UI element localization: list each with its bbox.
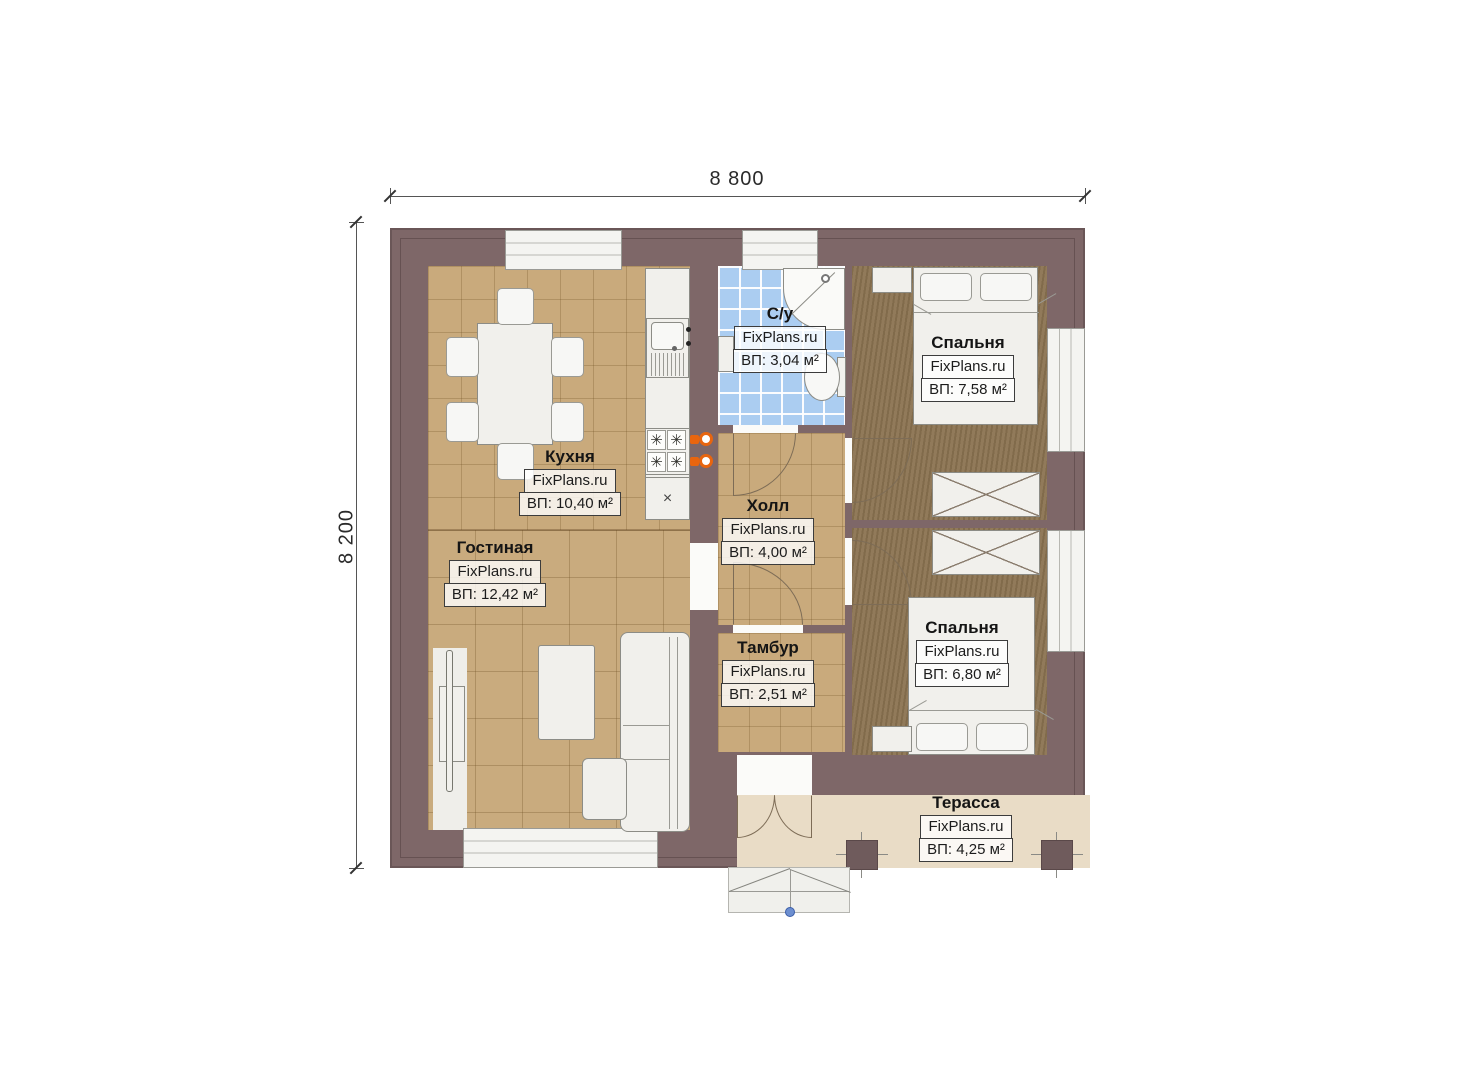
watermark-box: FixPlans.ru [920, 815, 1011, 839]
kitchen-living-divider [428, 529, 690, 531]
bedroom1-nightstand [872, 267, 912, 293]
porch-marker-dot [785, 907, 795, 917]
living-hall-passage [690, 543, 718, 610]
room-name: Гостиная [457, 538, 534, 558]
area-box: ВП: 4,00 м² [721, 541, 815, 565]
sofa-seat-line [623, 759, 669, 760]
bathroom-window [742, 230, 818, 270]
stove-knob-stick [690, 457, 699, 466]
sofa-main [620, 632, 690, 832]
pillow [920, 273, 972, 301]
watermark-box: FixPlans.ru [449, 560, 540, 584]
stove-burner: ✳ [667, 430, 686, 450]
kitchen-sink-bowl [651, 322, 684, 350]
area-box: ВП: 2,51 м² [721, 683, 815, 707]
dining-chair [497, 288, 534, 325]
porch-eave-line [729, 891, 849, 892]
coffee-table [538, 645, 595, 740]
watermark-box: FixPlans.ru [916, 640, 1007, 664]
dining-chair [551, 402, 584, 442]
blanket-line [909, 710, 1036, 711]
kitchen-sink-drainboard [651, 353, 684, 376]
burner-icon: ✳ [670, 433, 683, 448]
bathroom-door-opening [733, 425, 798, 433]
pillow [916, 723, 968, 751]
dimension-height-label: 8 200 [336, 507, 359, 567]
stove-burner: ✳ [667, 452, 686, 472]
sofa-seat-line [623, 725, 669, 726]
kitchen-window [505, 230, 622, 270]
bedroom2-label: Спальня FixPlans.ru ВП: 6,80 м² [906, 618, 1018, 687]
entrance-porch [728, 867, 850, 913]
tambour-door-opening [733, 625, 803, 633]
tambour-label: Тамбур FixPlans.ru ВП: 2,51 м² [712, 638, 824, 707]
dining-chair [446, 402, 479, 442]
kitchen-cabinet: × [645, 477, 690, 520]
counter-knob-dot [686, 341, 691, 346]
porch-ridge-line [790, 869, 791, 912]
hall-label: Холл FixPlans.ru ВП: 4,00 м² [715, 496, 821, 565]
bedroom1-label: Спальня FixPlans.ru ВП: 7,58 м² [912, 333, 1024, 402]
bedroom1-window [1047, 328, 1085, 452]
counter-knob-dot [686, 327, 691, 332]
dining-chair [551, 337, 584, 377]
watermark-box: FixPlans.ru [524, 469, 615, 493]
area-box: ВП: 3,04 м² [733, 349, 827, 373]
bedroom1-door-opening [845, 438, 852, 503]
blanket-fold [914, 304, 932, 315]
terrace-post [1041, 840, 1073, 870]
watermark-box: FixPlans.ru [722, 518, 813, 542]
kitchen-faucet-dot [672, 346, 677, 351]
sofa-chaise [582, 758, 627, 820]
porch-roof-edge [729, 868, 790, 892]
cabinet-x-icon: × [663, 490, 672, 508]
stove-knob-stick [690, 435, 699, 444]
room-name: Спальня [931, 333, 1004, 353]
room-name: Кухня [545, 447, 595, 467]
area-box: ВП: 12,42 м² [444, 583, 546, 607]
bedroom1-wardrobe [932, 472, 1040, 517]
burner-icon: ✳ [650, 433, 663, 448]
dining-chair [446, 337, 479, 377]
bedroom2-door-opening [845, 538, 852, 605]
kitchen-label: Кухня FixPlans.ru ВП: 10,40 м² [495, 447, 645, 516]
tv-screen [446, 650, 453, 792]
bathroom-label: С/у FixPlans.ru ВП: 3,04 м² [722, 304, 838, 373]
stove-burner: ✳ [647, 430, 666, 450]
watermark-box: FixPlans.ru [734, 326, 825, 350]
bedroom2-wardrobe [932, 530, 1040, 575]
sofa-backrest-line [669, 637, 670, 829]
area-box: ВП: 10,40 м² [519, 492, 621, 516]
terrace-label: Терасса FixPlans.ru ВП: 4,25 м² [910, 793, 1022, 862]
room-name: Терасса [932, 793, 999, 813]
blanket-line [914, 312, 1039, 313]
watermark-box: FixPlans.ru [722, 660, 813, 684]
stove-knob [699, 454, 713, 468]
watermark-box: FixPlans.ru [922, 355, 1013, 379]
burner-icon: ✳ [650, 455, 663, 470]
stove-burner: ✳ [647, 452, 666, 472]
dimension-line-top [390, 196, 1085, 197]
dining-table [477, 323, 553, 445]
area-box: ВП: 4,25 м² [919, 838, 1013, 862]
bedroom2-window [1047, 530, 1085, 652]
stove-knob [699, 432, 713, 446]
room-name: С/у [767, 304, 793, 324]
room-name: Тамбур [737, 638, 799, 658]
room-name: Холл [747, 496, 790, 516]
entrance-door-opening [737, 755, 812, 795]
dimension-width-label: 8 800 [637, 168, 837, 191]
room-name: Спальня [925, 618, 998, 638]
living-room-window [463, 828, 658, 868]
living-room-label: Гостиная FixPlans.ru ВП: 12,42 м² [425, 538, 565, 607]
pillow [980, 273, 1032, 301]
sofa-backrest-line [677, 637, 678, 829]
terrace-post [846, 840, 878, 870]
burner-icon: ✳ [670, 455, 683, 470]
area-box: ВП: 6,80 м² [915, 663, 1009, 687]
porch-roof-edge [790, 869, 851, 893]
area-box: ВП: 7,58 м² [921, 378, 1015, 402]
floor-plan: 8 800 8 200 ✳ ✳ ✳ [0, 0, 1474, 1080]
bedroom2-nightstand [872, 726, 912, 752]
pillow [976, 723, 1028, 751]
shower-head-icon [821, 274, 830, 283]
